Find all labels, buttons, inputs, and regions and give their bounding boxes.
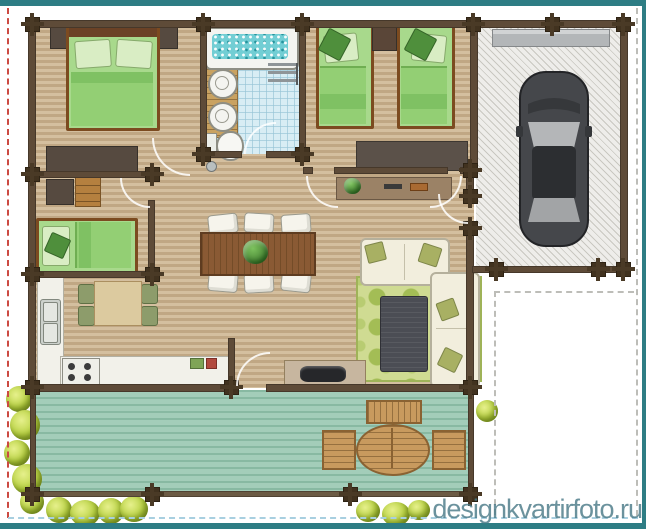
- kitchen-chair: [78, 284, 95, 304]
- single-bed: [36, 218, 138, 276]
- wall-post: [617, 263, 630, 276]
- wall-nursery-bottom: [28, 271, 154, 278]
- table-divider: [391, 428, 393, 468]
- burner: [84, 374, 91, 381]
- plot-boundary-horizontal: [494, 291, 634, 293]
- wall-post: [197, 148, 210, 161]
- cushion-line: [404, 244, 405, 280]
- wall-living-right-b: [466, 226, 474, 392]
- pillow: [74, 39, 112, 69]
- headboard: [69, 28, 157, 37]
- wall-bedroom2-garage: [470, 20, 478, 174]
- boundary-line-gray-right: [636, 8, 638, 516]
- duvet-fold: [79, 222, 91, 268]
- plot-boundary-vertical: [494, 291, 496, 515]
- car-top-view: [516, 70, 592, 248]
- wall-post: [26, 168, 39, 181]
- desk: [46, 179, 74, 205]
- countertop-appliance: [190, 358, 204, 369]
- wash-sink: [208, 102, 238, 132]
- wall-post: [26, 18, 39, 31]
- double-bed: [66, 25, 160, 131]
- wall-garage-right: [620, 20, 628, 273]
- floor-drain: [206, 161, 217, 172]
- frame-strip-right: [642, 0, 646, 529]
- wall-bath-right: [299, 20, 306, 158]
- console-item: [384, 184, 402, 189]
- wall-post: [26, 381, 39, 394]
- wall-terrace-right: [468, 392, 474, 497]
- sink-basin: [43, 323, 58, 343]
- wall-post: [26, 488, 39, 501]
- sink-bowl: [215, 109, 229, 123]
- pillow: [115, 39, 153, 69]
- wall-bedroom2-bottom: [334, 167, 448, 174]
- wall-post: [197, 18, 210, 31]
- nightstand-right: [157, 27, 178, 49]
- burner: [68, 363, 75, 370]
- burner: [68, 374, 75, 381]
- duvet-fold: [320, 94, 366, 109]
- oval-deck-table: [356, 424, 430, 476]
- duvet-fold: [71, 72, 153, 83]
- duvet-fold: [401, 94, 447, 109]
- wall-post: [26, 268, 39, 281]
- wall-terrace-left: [30, 392, 36, 497]
- wall-post: [464, 381, 477, 394]
- wall-post: [467, 18, 480, 31]
- kitchen-chair: [141, 284, 158, 304]
- wall-exterior-top: [26, 20, 628, 28]
- wall-house-bottom-b: [266, 384, 472, 392]
- wall-terrace-bottom: [28, 491, 476, 497]
- wall-post: [617, 18, 630, 31]
- console-item: [410, 183, 428, 191]
- wall-bedroom1-bottom: [28, 171, 152, 178]
- wall-post: [344, 488, 357, 501]
- watermark-text: designkvartirfoto.ru: [432, 494, 642, 525]
- wall-house-bottom-a: [28, 384, 234, 392]
- wall-bath-left: [200, 20, 207, 158]
- car: [516, 70, 592, 248]
- wall-post: [146, 268, 159, 281]
- frame-strip-top: [0, 0, 646, 6]
- stove: [62, 358, 100, 386]
- wall-exterior-left: [28, 20, 36, 392]
- dining-chair: [243, 212, 274, 234]
- bedroom-dresser: [46, 146, 138, 173]
- wall-post: [592, 263, 605, 276]
- wall-post: [490, 263, 503, 276]
- wash-sink: [208, 69, 238, 99]
- kitchen-chair: [141, 306, 158, 326]
- wall-post: [546, 18, 559, 31]
- tv: [300, 366, 346, 382]
- coffee-table: [380, 296, 428, 372]
- bush: [46, 497, 72, 523]
- tub-water: [212, 34, 288, 59]
- wall-post: [296, 18, 309, 31]
- table-plant: [243, 240, 268, 264]
- towel-rack: [268, 63, 298, 85]
- burner: [84, 363, 91, 370]
- kitchen-chair: [78, 306, 95, 326]
- kitchen-sink: [40, 299, 61, 345]
- wall-post: [464, 164, 477, 177]
- deck-chair-left: [322, 430, 356, 470]
- deck-bench: [366, 400, 422, 424]
- twin-bed-right: [397, 25, 455, 129]
- floor-plan-canvas: designkvartirfoto.ru: [0, 0, 646, 529]
- countertop-appliance: [206, 358, 217, 369]
- sink-basin: [43, 302, 58, 322]
- deck-chair-right: [432, 430, 466, 470]
- sink-bowl: [215, 76, 229, 90]
- wall-post: [146, 488, 159, 501]
- twin-bed-left: [316, 25, 374, 129]
- drawer-chest: [75, 177, 101, 207]
- console-plant: [344, 178, 361, 194]
- boundary-line-red: [7, 8, 9, 518]
- wall-bedroom2-bottom-stub: [303, 167, 313, 174]
- wall-post: [296, 148, 309, 161]
- kitchen-table: [94, 281, 142, 326]
